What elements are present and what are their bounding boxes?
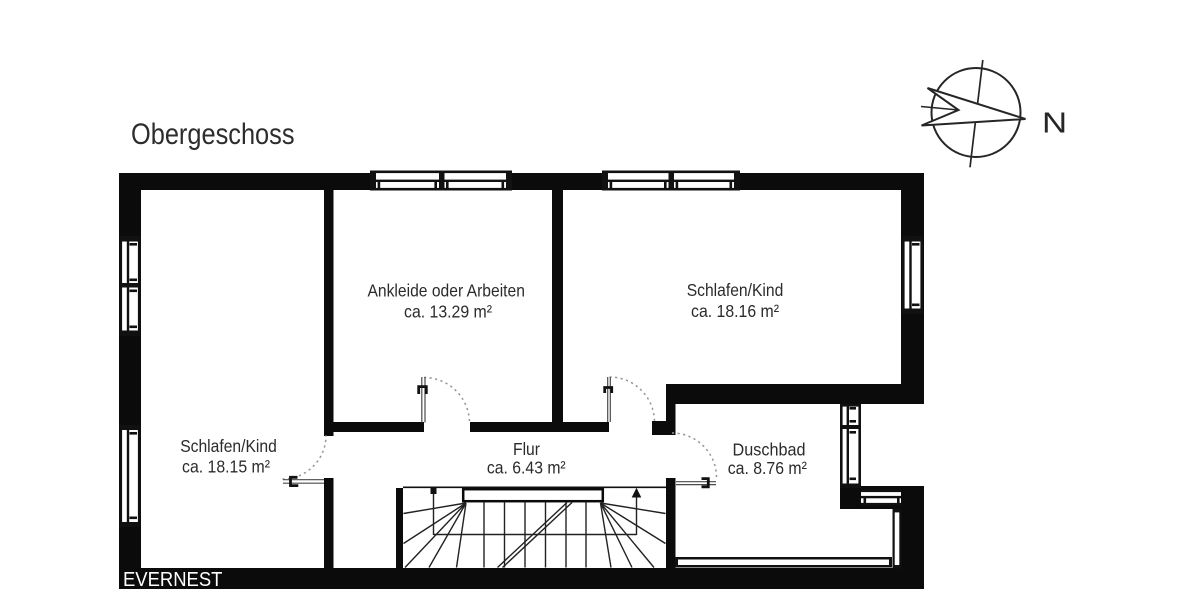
svg-text:Schlafen/Kind: Schlafen/Kind — [180, 436, 277, 456]
svg-text:Schlafen/Kind: Schlafen/Kind — [687, 280, 784, 300]
svg-text:Duschbad: Duschbad — [733, 440, 806, 460]
svg-text:Ankleide oder Arbeiten: Ankleide oder Arbeiten — [367, 280, 524, 300]
svg-text:ca. 8.76 m²: ca. 8.76 m² — [728, 458, 807, 478]
svg-text:N: N — [1042, 106, 1067, 139]
svg-text:ca. 13.29 m²: ca. 13.29 m² — [404, 301, 492, 321]
svg-text:Flur: Flur — [513, 439, 540, 459]
svg-text:ca. 6.43 m²: ca. 6.43 m² — [487, 458, 566, 478]
svg-text:Obergeschoss: Obergeschoss — [131, 117, 295, 150]
svg-text:ca. 18.15 m²: ca. 18.15 m² — [182, 457, 270, 477]
svg-text:EVERNEST: EVERNEST — [123, 568, 223, 591]
svg-text:ca. 18.16 m²: ca. 18.16 m² — [691, 301, 779, 321]
